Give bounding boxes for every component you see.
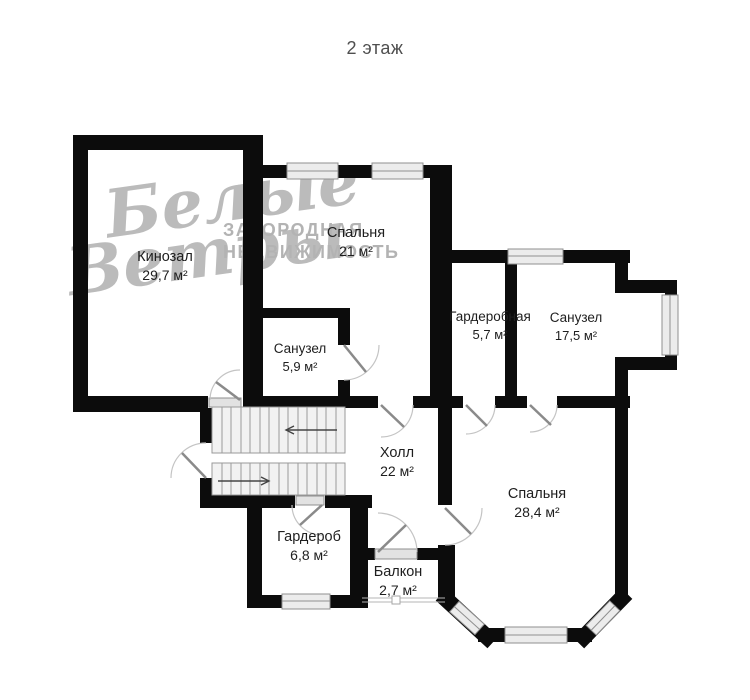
window-bay-right (662, 295, 678, 355)
room-area: 6,8 м² (234, 546, 384, 564)
room-label-balcony: Балкон 2,7 м² (323, 563, 473, 599)
door-wardrobe57-bedroom (466, 405, 495, 434)
room-area: 22 м² (322, 462, 472, 480)
room-label-bathroom175: Санузел 17,5 м² (501, 309, 651, 345)
room-name: Санузел (225, 340, 375, 358)
room-area: 28,4 м² (462, 503, 612, 521)
room-label-bedroom284: Спальня 28,4 м² (462, 485, 612, 521)
room-name: Кинозал (90, 248, 240, 266)
room-area: 29,7 м² (90, 266, 240, 284)
room-label-bedroom21: Спальня 21 м² (281, 224, 431, 260)
room-area: 2,7 м² (323, 581, 473, 599)
room-name: Балкон (323, 563, 473, 581)
room-name: Санузел (501, 309, 651, 327)
door-bathroom175-bedroom (530, 405, 557, 432)
window-bathroom175-top (508, 249, 563, 264)
room-name: Спальня (462, 485, 612, 503)
room-name: Спальня (281, 224, 431, 242)
room-area: 17,5 м² (501, 327, 651, 345)
room-name: Холл (322, 444, 472, 462)
room-label-cinema: Кинозал 29,7 м² (90, 248, 240, 284)
door-bedroom21-hall (381, 405, 413, 437)
sill-wardrobe-door (296, 496, 324, 505)
room-label-bathroom59: Санузел 5,9 м² (225, 340, 375, 376)
window-bedroom21-left (287, 163, 338, 179)
room-label-wardrobe68: Гардероб 6,8 м² (234, 528, 384, 564)
room-area: 21 м² (281, 242, 431, 260)
window-bay-bottom (505, 627, 567, 643)
room-label-hall: Холл 22 м² (322, 444, 472, 480)
floor-plan-page: 2 этаж Белые Ветры ЗАГОРОДНАЯ НЕДВИЖИМОС… (0, 0, 750, 700)
window-bedroom21-right (372, 163, 423, 179)
room-area: 5,9 м² (225, 358, 375, 376)
sill-cinema-door (209, 398, 241, 407)
room-name: Гардероб (234, 528, 384, 546)
door-stair-landing (171, 443, 206, 478)
